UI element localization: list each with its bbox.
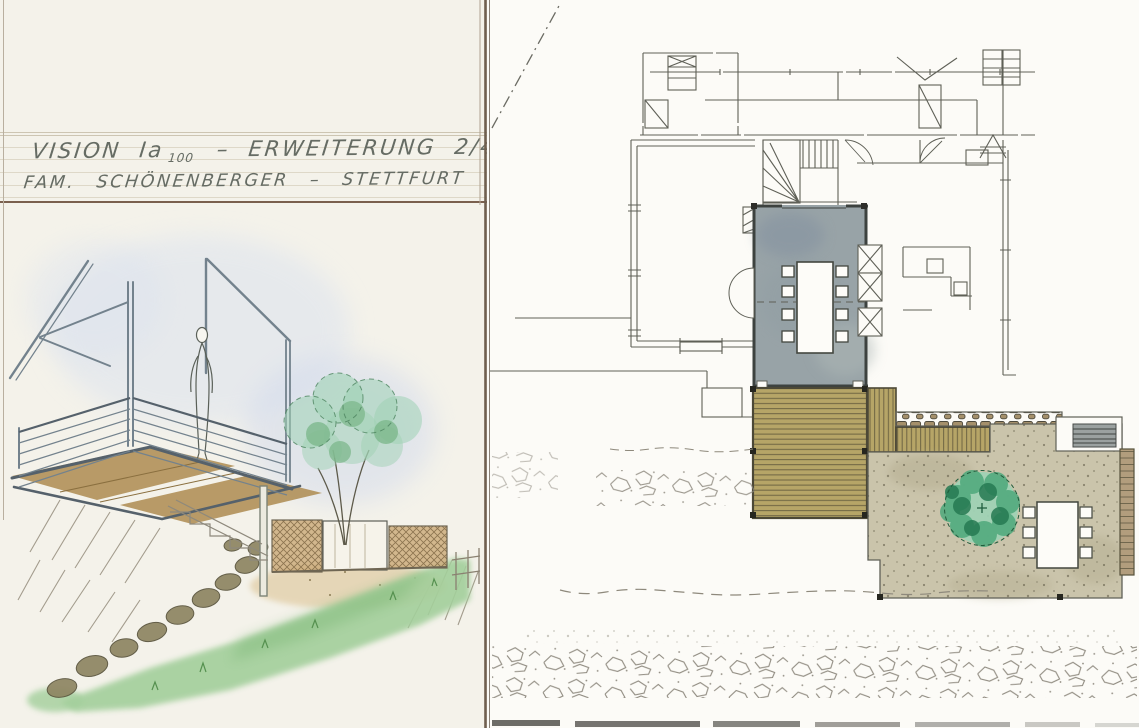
garden-gate <box>323 521 387 570</box>
stone-wall <box>1120 449 1134 575</box>
terrace-table <box>1037 502 1078 568</box>
dining-room-extension <box>729 203 882 390</box>
cellar-grate <box>1056 417 1122 451</box>
dining-table <box>797 262 833 353</box>
grass-slope <box>27 558 470 712</box>
scanned-architectural-sketch: VISION Ia100– ERWEITERUNG 2/4 FAM. SCHÖN… <box>0 0 1139 728</box>
boardwalk <box>896 427 990 452</box>
winder-stair <box>763 140 800 203</box>
support-post <box>260 486 267 596</box>
perspective-sketch <box>0 0 487 728</box>
terrace-table-group <box>1023 502 1092 568</box>
door-swing <box>729 268 754 318</box>
x-window-modules <box>858 245 882 336</box>
kitchen <box>903 150 988 310</box>
sheet-left: VISION Ia100– ERWEITERUNG 2/4 FAM. SCHÖN… <box>0 0 487 728</box>
sheet-right <box>487 0 1139 728</box>
scan-edge-strip <box>492 720 1139 727</box>
property-line <box>492 4 560 128</box>
floor-plan <box>487 0 1139 728</box>
